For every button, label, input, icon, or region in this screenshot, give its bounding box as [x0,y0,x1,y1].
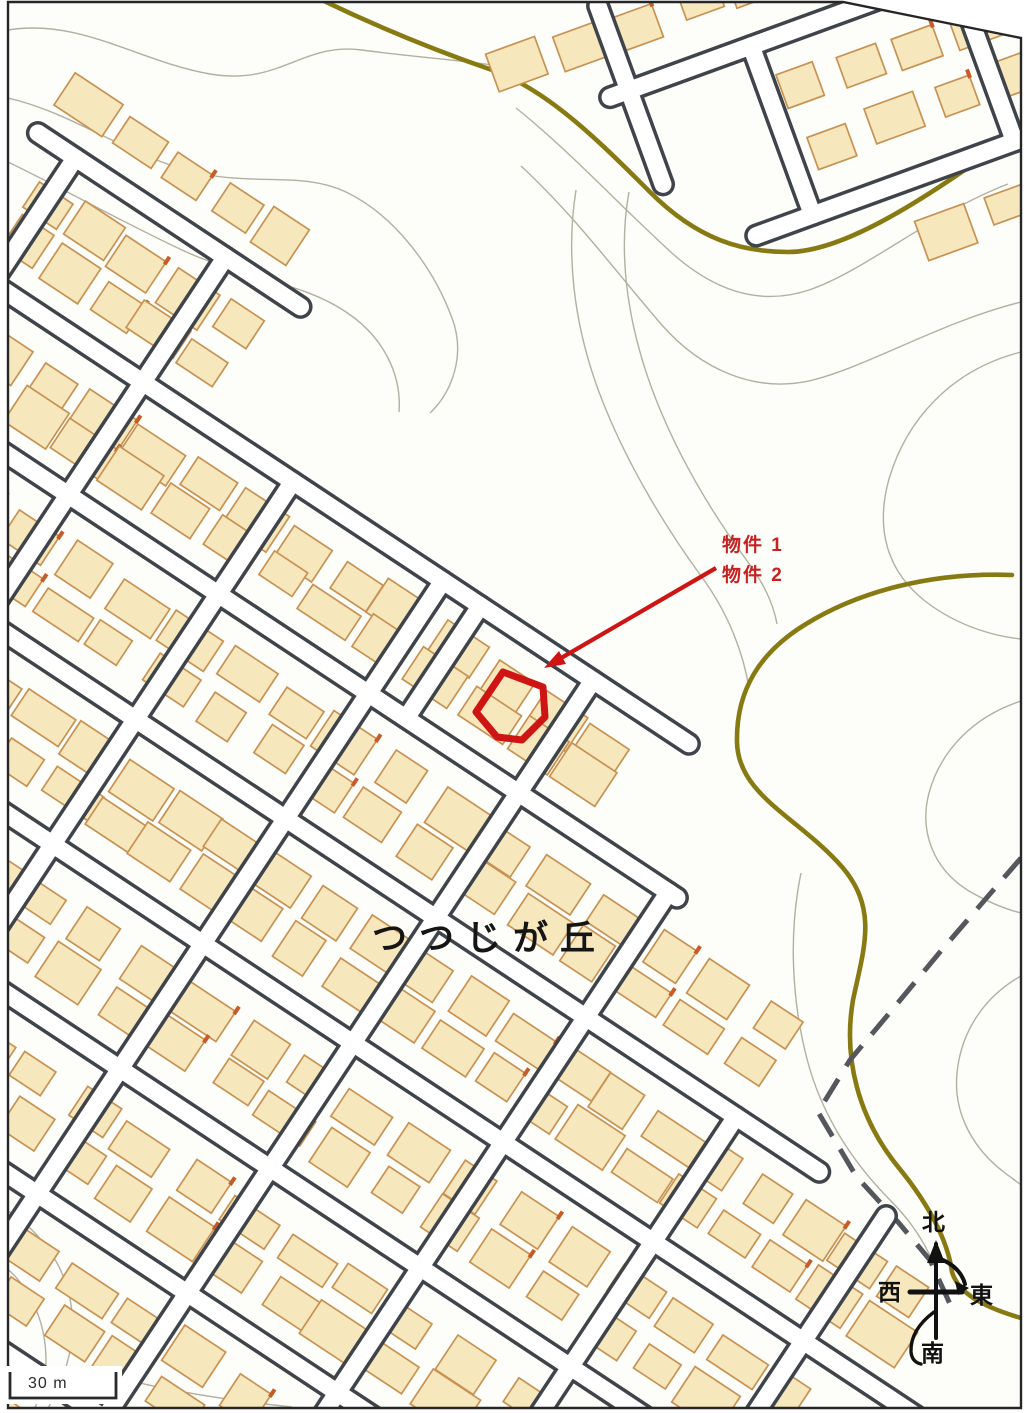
scalebar-label: 30 m [28,1376,68,1393]
district-label: つつじが丘 [372,921,607,958]
compass-north-label: 北 [922,1210,945,1234]
property1-label: 物件 1 [722,536,784,556]
map-clipped-layers [0,0,1029,1413]
map-svg [0,0,1029,1413]
house-footprint [0,348,7,404]
compass-west-label: 西 [878,1280,901,1304]
property2-label: 物件 2 [722,566,784,586]
compass-east-label: 東 [970,1283,993,1307]
compass-south-label: 南 [921,1341,944,1365]
map-page: つつじが丘 物件 1 物件 2 北 西 東 南 30 m [0,0,1029,1413]
